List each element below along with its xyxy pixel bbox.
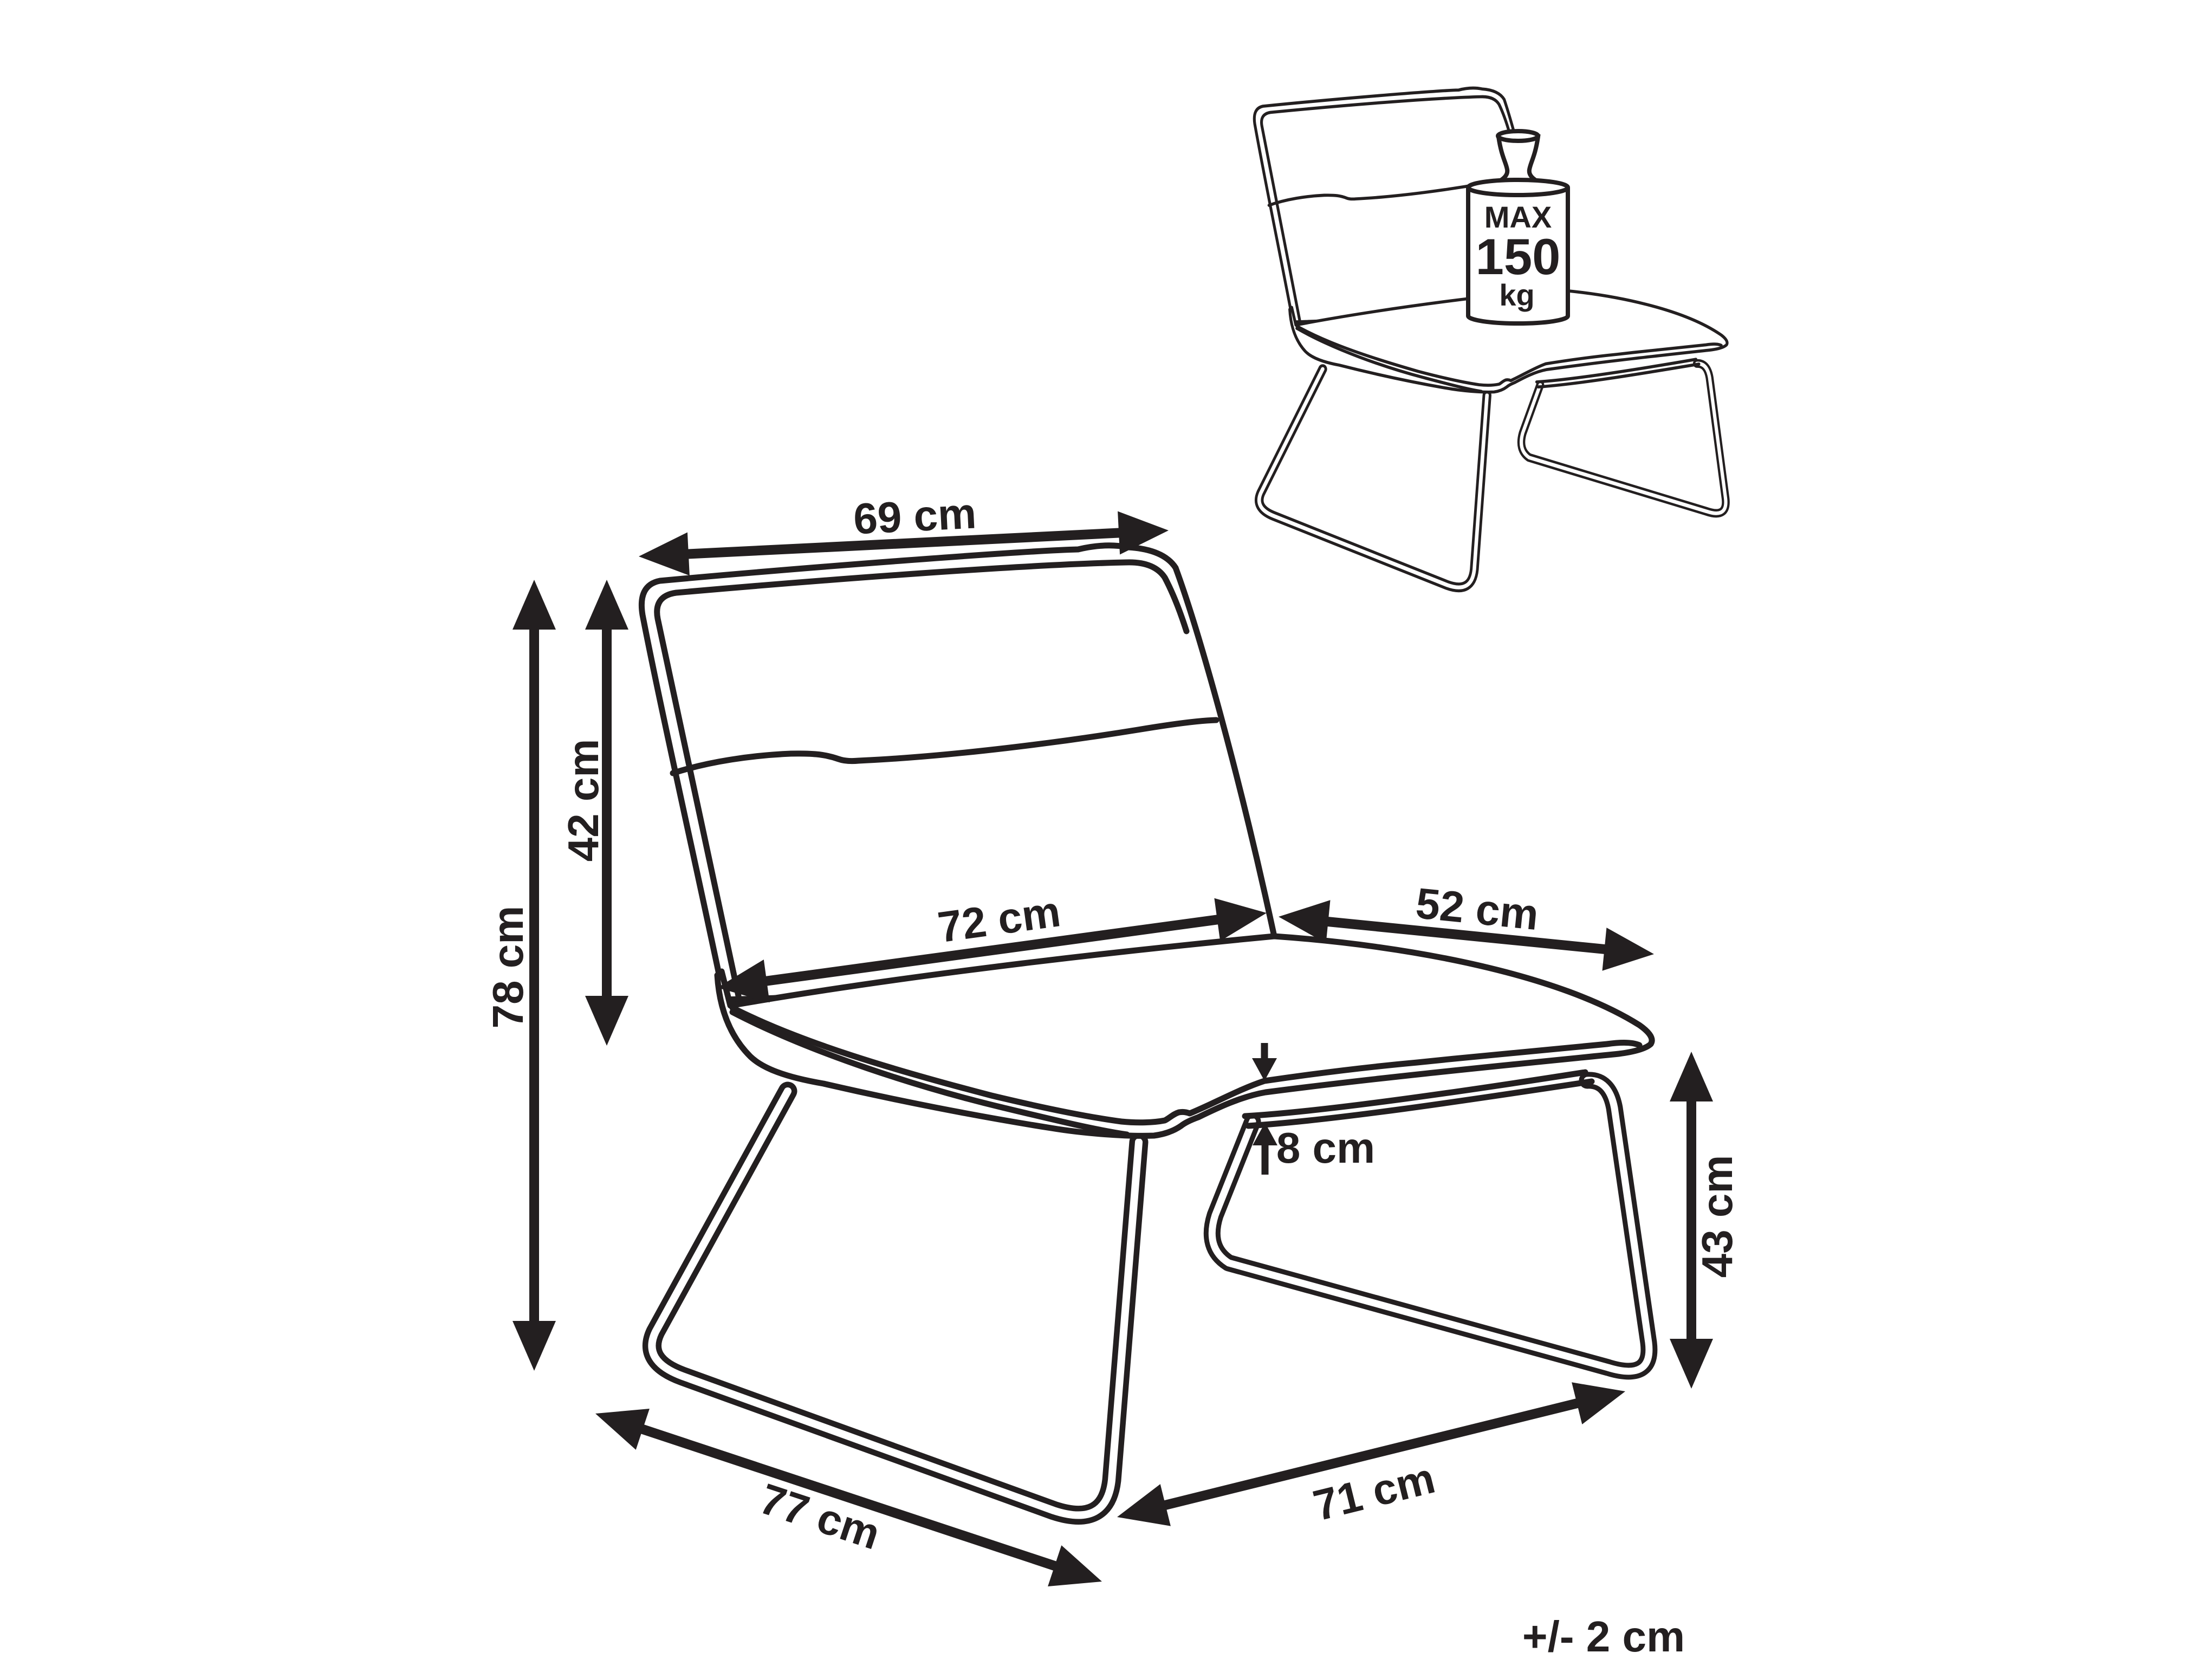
svg-text:43 cm: 43 cm: [1693, 1155, 1741, 1278]
svg-text:69 cm: 69 cm: [852, 489, 977, 543]
svg-text:8 cm: 8 cm: [1276, 1124, 1375, 1172]
svg-text:kg: kg: [1499, 278, 1534, 312]
svg-text:78 cm: 78 cm: [484, 906, 532, 1029]
svg-text:+/- 2 cm: +/- 2 cm: [1522, 1612, 1685, 1659]
svg-text:42 cm: 42 cm: [559, 739, 607, 862]
svg-text:150: 150: [1476, 228, 1561, 285]
